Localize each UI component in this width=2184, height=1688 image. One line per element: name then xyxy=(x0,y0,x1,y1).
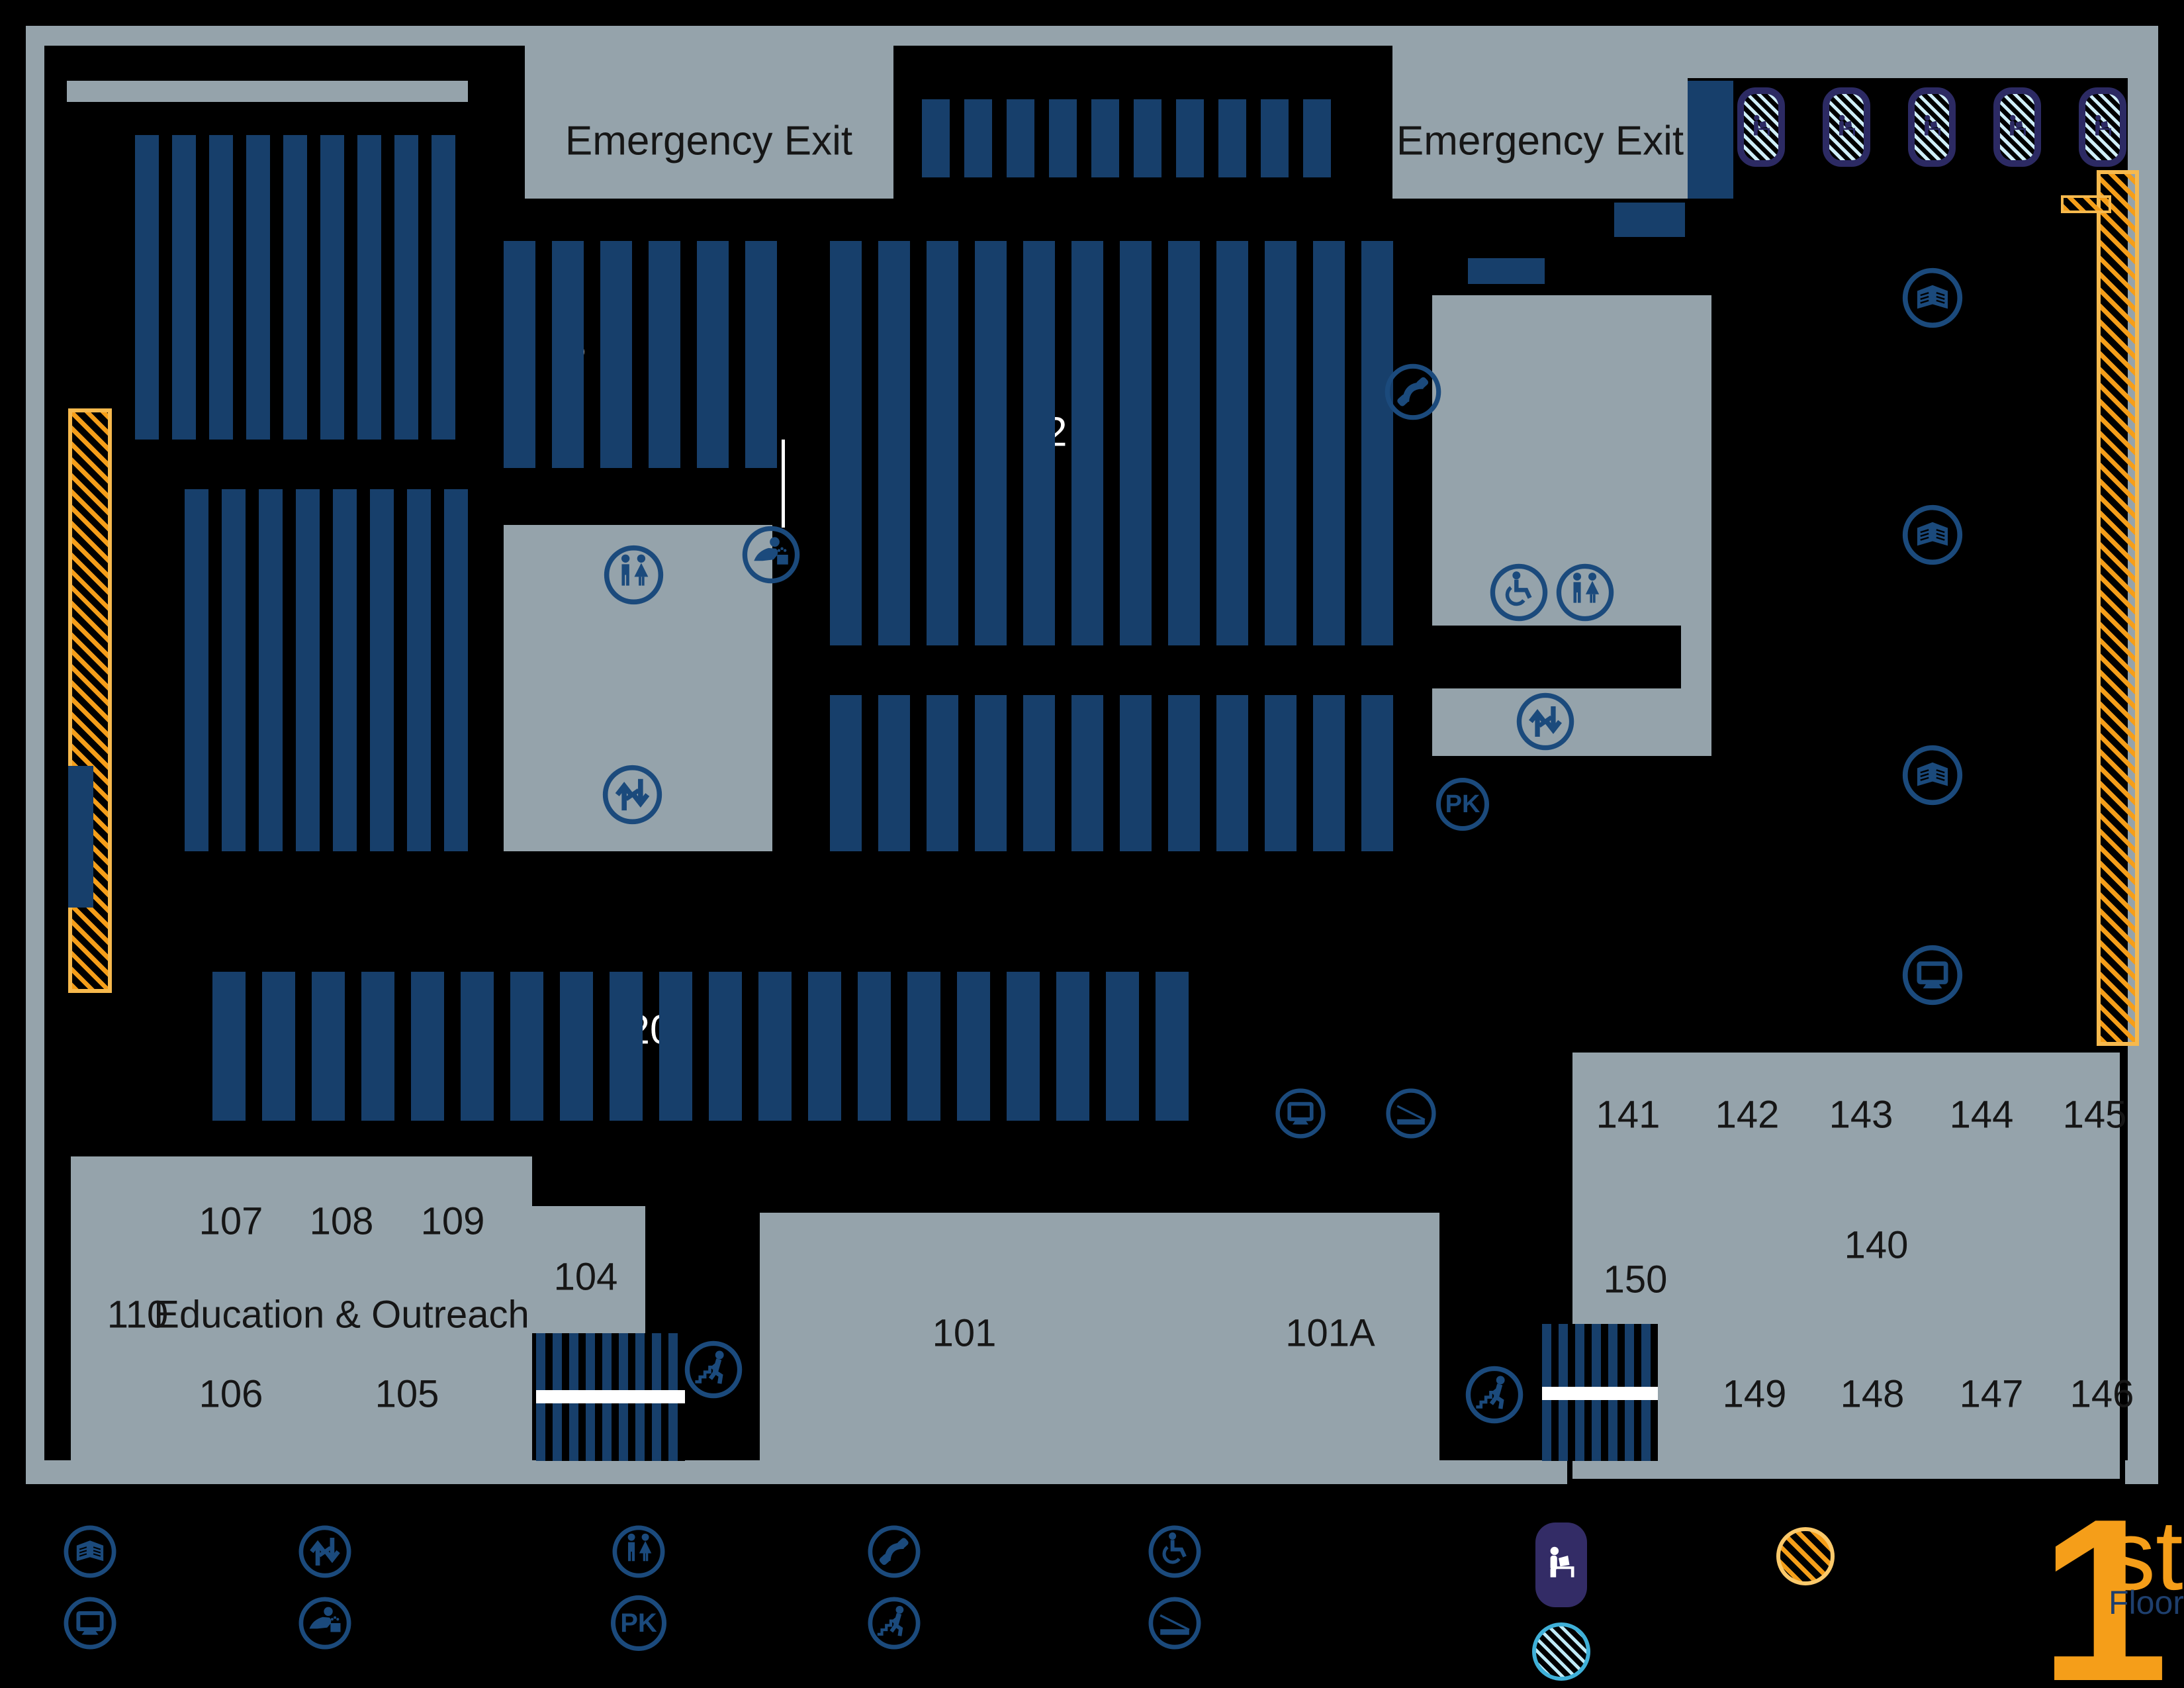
stairs-icon xyxy=(1515,691,1576,752)
restroom-icon xyxy=(1555,562,1615,623)
legend-hatched-cyan-circle-icon xyxy=(1532,1622,1590,1681)
door-block-left xyxy=(68,766,93,908)
room-144-label: 144 xyxy=(1950,1093,2014,1137)
room-106-label: 106 xyxy=(199,1372,263,1417)
floor-map-page: 5 12 20 Emergency Exit Emergency Exit 10… xyxy=(0,0,2184,1688)
person-climbing-stairs-icon xyxy=(683,1339,744,1400)
pk-icon: PK xyxy=(1436,778,1489,831)
emergency-exit-right-label: Emergency Exit xyxy=(1396,118,1684,165)
computer-icon xyxy=(1901,943,1964,1007)
corridor-upper-right xyxy=(1432,626,1681,688)
stairs-icon xyxy=(601,763,664,826)
legend-pk-icon: PK xyxy=(611,1595,666,1651)
ramp-icon xyxy=(1385,1087,1437,1140)
room-148-label: 148 xyxy=(1841,1372,1905,1417)
legend-drinking-fountain-icon xyxy=(297,1595,353,1651)
room-101-label: 101 xyxy=(933,1311,997,1356)
legend-person-climbing-stairs-icon xyxy=(866,1595,922,1651)
drinking-fountain-icon xyxy=(741,524,801,585)
stacks-top-left xyxy=(135,135,455,440)
frame-top-right-band xyxy=(1688,26,2158,78)
book-icon xyxy=(1901,743,1964,807)
wall-block-2 xyxy=(1614,203,1685,237)
room-147-label: 147 xyxy=(1960,1372,2024,1417)
telephone-icon xyxy=(1383,362,1443,422)
room-149-label: 149 xyxy=(1723,1372,1787,1417)
legend-study-carrel-icon xyxy=(1535,1523,1587,1607)
room-emergency-exit-right xyxy=(1392,28,1688,199)
legend-hatched-yellow-circle-icon xyxy=(1776,1527,1835,1585)
door-marker xyxy=(782,440,785,528)
stairwell-right xyxy=(1542,1324,1658,1461)
wheelchair-icon xyxy=(1488,562,1549,623)
floor-word: Floor xyxy=(2109,1586,2184,1619)
stacks-center-lower xyxy=(830,695,1393,851)
legend-stairs-icon xyxy=(297,1524,353,1579)
room-146-label: 146 xyxy=(2070,1372,2134,1417)
book-icon xyxy=(1901,503,1964,567)
legend-restroom-icon xyxy=(611,1524,666,1579)
study-carrel-4 xyxy=(1993,87,2041,167)
restroom-icon xyxy=(602,543,665,606)
study-carrel-5 xyxy=(2079,87,2126,167)
stacks-center-large xyxy=(830,241,1393,645)
room-141-label: 141 xyxy=(1596,1093,1661,1137)
stacks-bottom-long xyxy=(212,972,1189,1121)
room-140-label: 140 xyxy=(1844,1223,1909,1268)
room-105-label: 105 xyxy=(375,1372,439,1417)
stacks-top-middle xyxy=(922,99,1331,177)
room-107-label: 107 xyxy=(199,1199,263,1244)
study-carrel-1 xyxy=(1737,87,1785,167)
hatched-zone-right xyxy=(2097,170,2139,1046)
room-109-label: 109 xyxy=(421,1199,485,1244)
legend-ramp-icon xyxy=(1147,1595,1203,1651)
stacks-left-middle xyxy=(185,489,468,851)
wall-block-3 xyxy=(1468,258,1545,284)
legend-computer-icon xyxy=(62,1595,118,1651)
study-carrel-2 xyxy=(1823,87,1870,167)
room-143-label: 143 xyxy=(1829,1093,1893,1137)
legend-wheelchair-icon xyxy=(1147,1524,1203,1579)
wall-block-1 xyxy=(1688,81,1733,199)
study-carrel-3 xyxy=(1908,87,1956,167)
stairwell-left xyxy=(536,1333,685,1461)
stacks-mid-left-top xyxy=(504,241,777,468)
room-145-label: 145 xyxy=(2063,1093,2127,1137)
emergency-exit-left-label: Emergency Exit xyxy=(565,118,852,165)
room-142-label: 142 xyxy=(1715,1093,1780,1137)
book-icon xyxy=(1901,266,1964,330)
room-150-label: 150 xyxy=(1604,1258,1668,1302)
room-emergency-exit-left xyxy=(525,28,893,199)
person-climbing-stairs-icon xyxy=(1464,1364,1525,1425)
legend-book-icon xyxy=(62,1524,118,1579)
computer-icon xyxy=(1274,1087,1327,1140)
wall-top-left xyxy=(67,81,468,102)
education-outreach-label: Education & Outreach xyxy=(154,1293,529,1337)
legend-telephone-icon xyxy=(866,1524,922,1579)
room-101a-label: 101A xyxy=(1285,1311,1375,1356)
hatched-marker-small xyxy=(2061,195,2111,213)
room-108-label: 108 xyxy=(310,1199,374,1244)
room-104-label: 104 xyxy=(554,1255,618,1299)
